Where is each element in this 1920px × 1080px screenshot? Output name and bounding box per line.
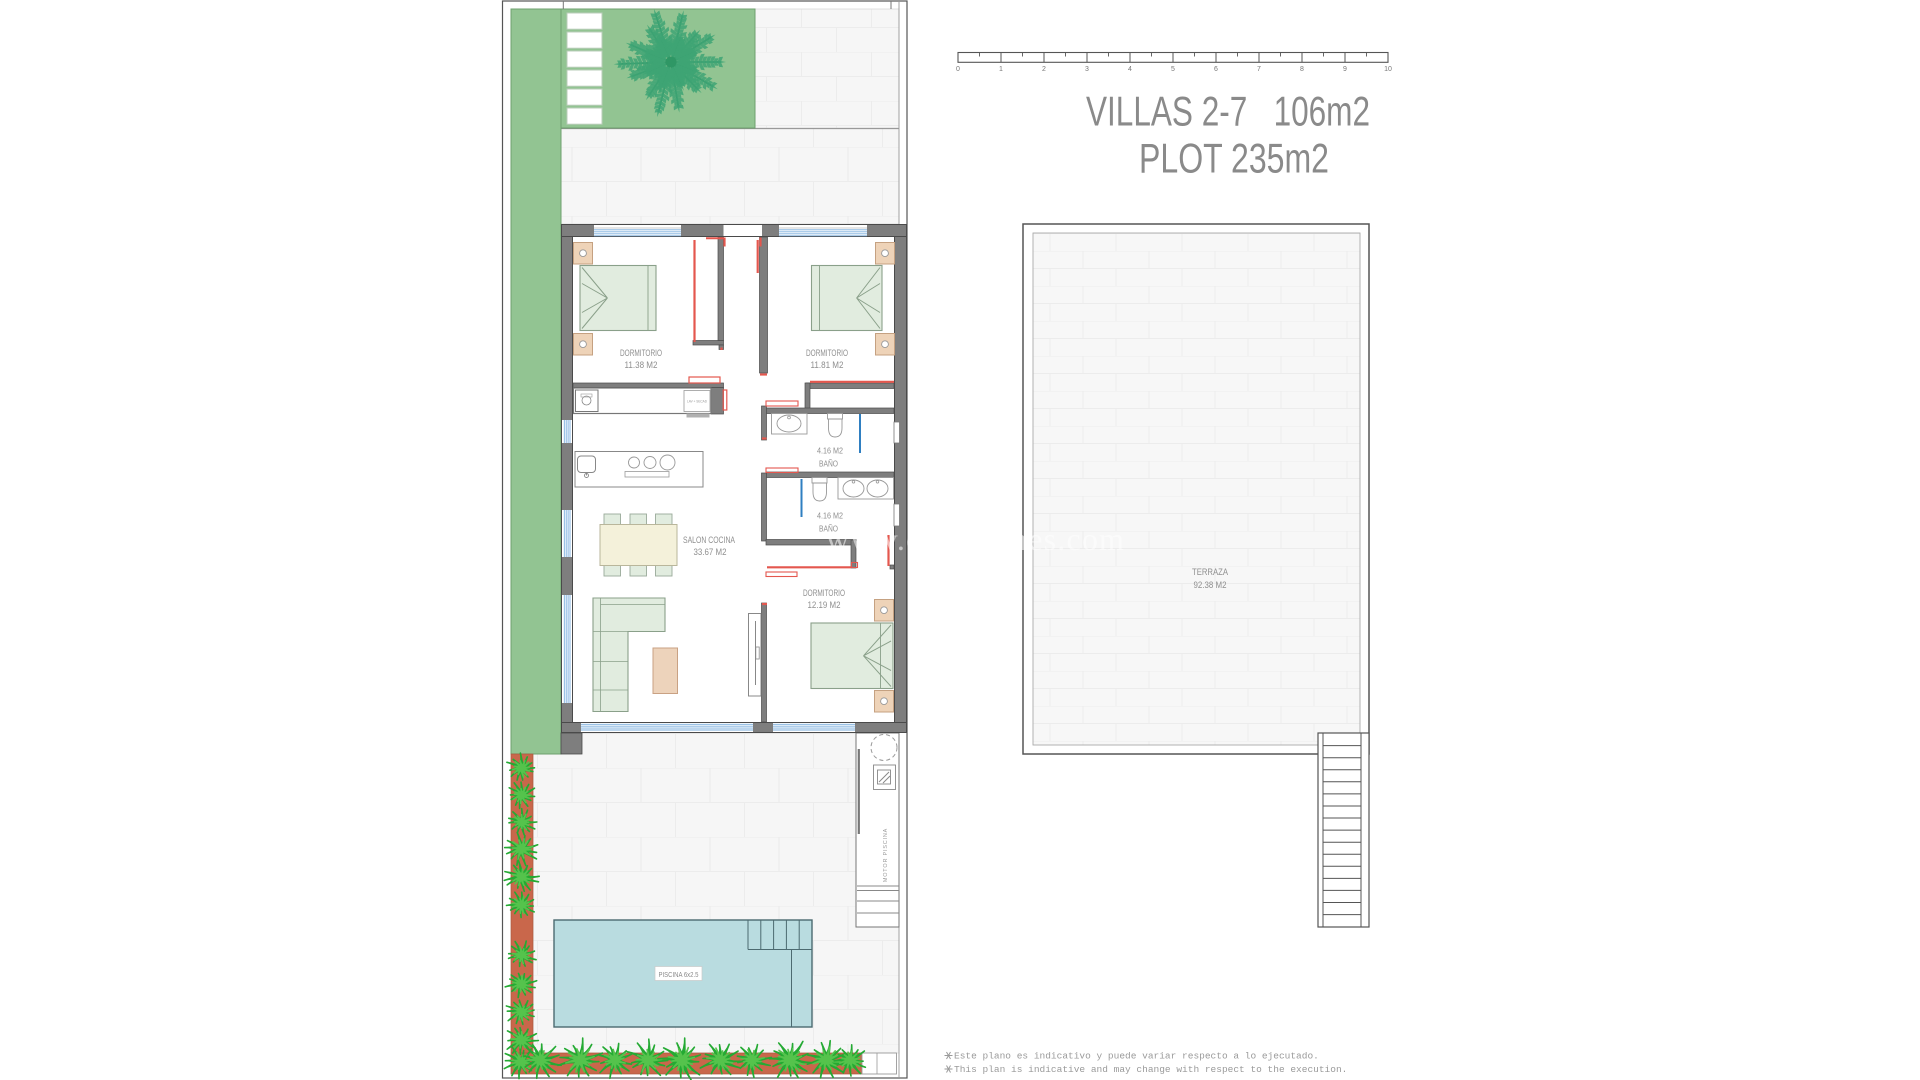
svg-text:11.81 M2: 11.81 M2 (811, 360, 844, 370)
svg-text:4: 4 (1128, 66, 1132, 73)
svg-text:33.67 M2: 33.67 M2 (694, 547, 727, 557)
svg-text:8: 8 (1300, 66, 1304, 73)
svg-text:DORMITORIO: DORMITORIO (620, 348, 662, 358)
svg-text:1: 1 (999, 66, 1003, 73)
svg-text:4.16 M2: 4.16 M2 (817, 511, 843, 521)
svg-text:BAÑO: BAÑO (819, 459, 838, 469)
svg-text:5: 5 (1171, 66, 1175, 73)
svg-text:3: 3 (1085, 66, 1089, 73)
svg-text:4.16 M2: 4.16 M2 (817, 446, 843, 456)
svg-text:10: 10 (1384, 66, 1392, 73)
svg-text:12.19 M2: 12.19 M2 (808, 600, 841, 610)
svg-text:9: 9 (1343, 66, 1347, 73)
svg-text:SALON COCINA: SALON COCINA (683, 535, 735, 545)
svg-text:11.38 M2: 11.38 M2 (625, 360, 658, 370)
svg-text:0: 0 (956, 66, 960, 73)
svg-text:VILLAS 2-7 106m2: VILLAS 2-7 106m2 (1086, 88, 1370, 135)
svg-text:This plan is indicative and ma: This plan is indicative and may change w… (954, 1064, 1347, 1075)
svg-text:7: 7 (1257, 66, 1261, 73)
svg-text:2: 2 (1042, 66, 1046, 73)
svg-text:www.espahomes.com: www.espahomes.com (826, 521, 1125, 557)
svg-text:LAV + SECAD: LAV + SECAD (687, 400, 708, 404)
svg-text:DORMITORIO: DORMITORIO (803, 588, 845, 598)
svg-text:6: 6 (1214, 66, 1218, 73)
svg-text:PLOT 235m2: PLOT 235m2 (1139, 135, 1329, 182)
svg-text:PISCINA 6x2.5: PISCINA 6x2.5 (659, 972, 699, 979)
svg-text:92.38 M2: 92.38 M2 (1194, 580, 1227, 590)
svg-text:DORMITORIO: DORMITORIO (806, 348, 848, 358)
svg-text:MOTOR PISCINA: MOTOR PISCINA (883, 828, 889, 882)
svg-text:TERRAZA: TERRAZA (1192, 567, 1228, 577)
svg-text:Este plano es indicativo y pue: Este plano es indicativo y puede variar … (954, 1051, 1319, 1062)
